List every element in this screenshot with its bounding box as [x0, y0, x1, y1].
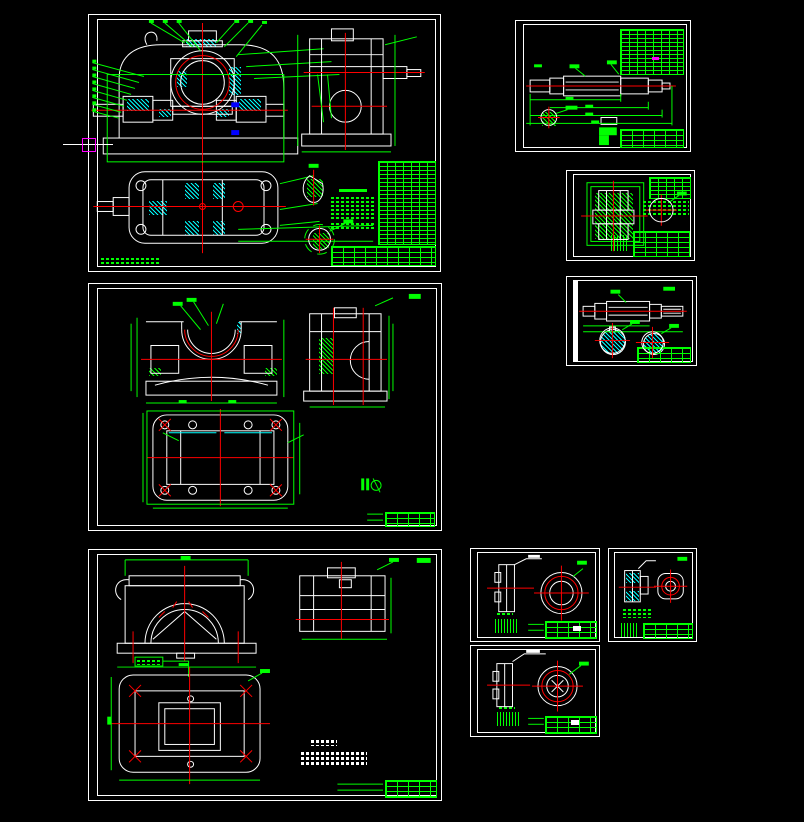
cad-canvas	[0, 0, 804, 822]
cursor-pickbox	[82, 138, 96, 152]
section-views	[595, 323, 669, 358]
front-circular-view	[534, 566, 589, 621]
cap2-geometry	[471, 646, 599, 736]
worm-dims	[583, 295, 683, 334]
front-view	[654, 570, 687, 603]
front-circular-view	[532, 661, 583, 712]
side-view	[300, 568, 385, 631]
finish-symbols	[361, 478, 381, 492]
front-dim-lines	[92, 23, 339, 162]
top-leaders	[238, 176, 373, 241]
top-centerlines	[93, 166, 285, 253]
end-section-detail	[538, 107, 560, 129]
side-view	[304, 308, 387, 401]
side-dims	[302, 562, 393, 639]
sheet-end-cap-1[interactable]	[470, 548, 600, 642]
title-extensions	[337, 784, 383, 790]
front-top-dim	[125, 560, 248, 576]
base-geometry	[89, 284, 441, 530]
front-view	[116, 576, 256, 658]
front-bottom-dim	[117, 657, 256, 677]
shaft-geometry	[516, 21, 690, 151]
sheet-housing-base[interactable]	[88, 283, 442, 531]
flange-geometry	[609, 549, 696, 641]
sheet-flange-cap[interactable]	[608, 548, 697, 642]
worm-geometry	[567, 277, 696, 365]
section-view	[625, 561, 656, 602]
sheet-input-shaft[interactable]	[515, 20, 691, 152]
detail-a	[303, 164, 323, 206]
top-view	[97, 172, 278, 243]
sheet-worm-shaft[interactable]	[566, 276, 697, 366]
sheet-worm-gear[interactable]	[566, 170, 695, 261]
title-extensions	[528, 718, 544, 724]
front-centerlines	[141, 312, 282, 401]
detail-b	[305, 219, 354, 254]
dim-text-marks	[534, 60, 617, 145]
sheet-assembly[interactable]	[88, 14, 441, 272]
bearing-seals	[231, 102, 239, 135]
title-extensions	[367, 514, 383, 520]
gear-geometry	[567, 171, 694, 260]
title-extensions	[528, 624, 544, 630]
section-view	[493, 654, 546, 707]
view-label	[677, 557, 687, 561]
labels	[107, 556, 430, 725]
side-centerlines	[306, 308, 387, 405]
sheet-end-cap-2[interactable]	[470, 645, 600, 737]
worm-profile	[583, 301, 683, 331]
gear-centerlines	[581, 181, 677, 251]
shaft-dims	[526, 64, 672, 125]
assembly-geometry	[89, 15, 440, 271]
dim-frames	[587, 183, 679, 246]
cap1-geometry	[471, 549, 599, 641]
front-labels	[173, 294, 421, 403]
sheet-housing-cover[interactable]	[88, 549, 442, 801]
label	[677, 192, 687, 196]
front-dims	[131, 302, 284, 403]
section-view	[495, 559, 542, 612]
front-centerlines	[133, 566, 238, 663]
side-centerlines	[296, 562, 389, 639]
cover-geometry	[89, 550, 441, 800]
